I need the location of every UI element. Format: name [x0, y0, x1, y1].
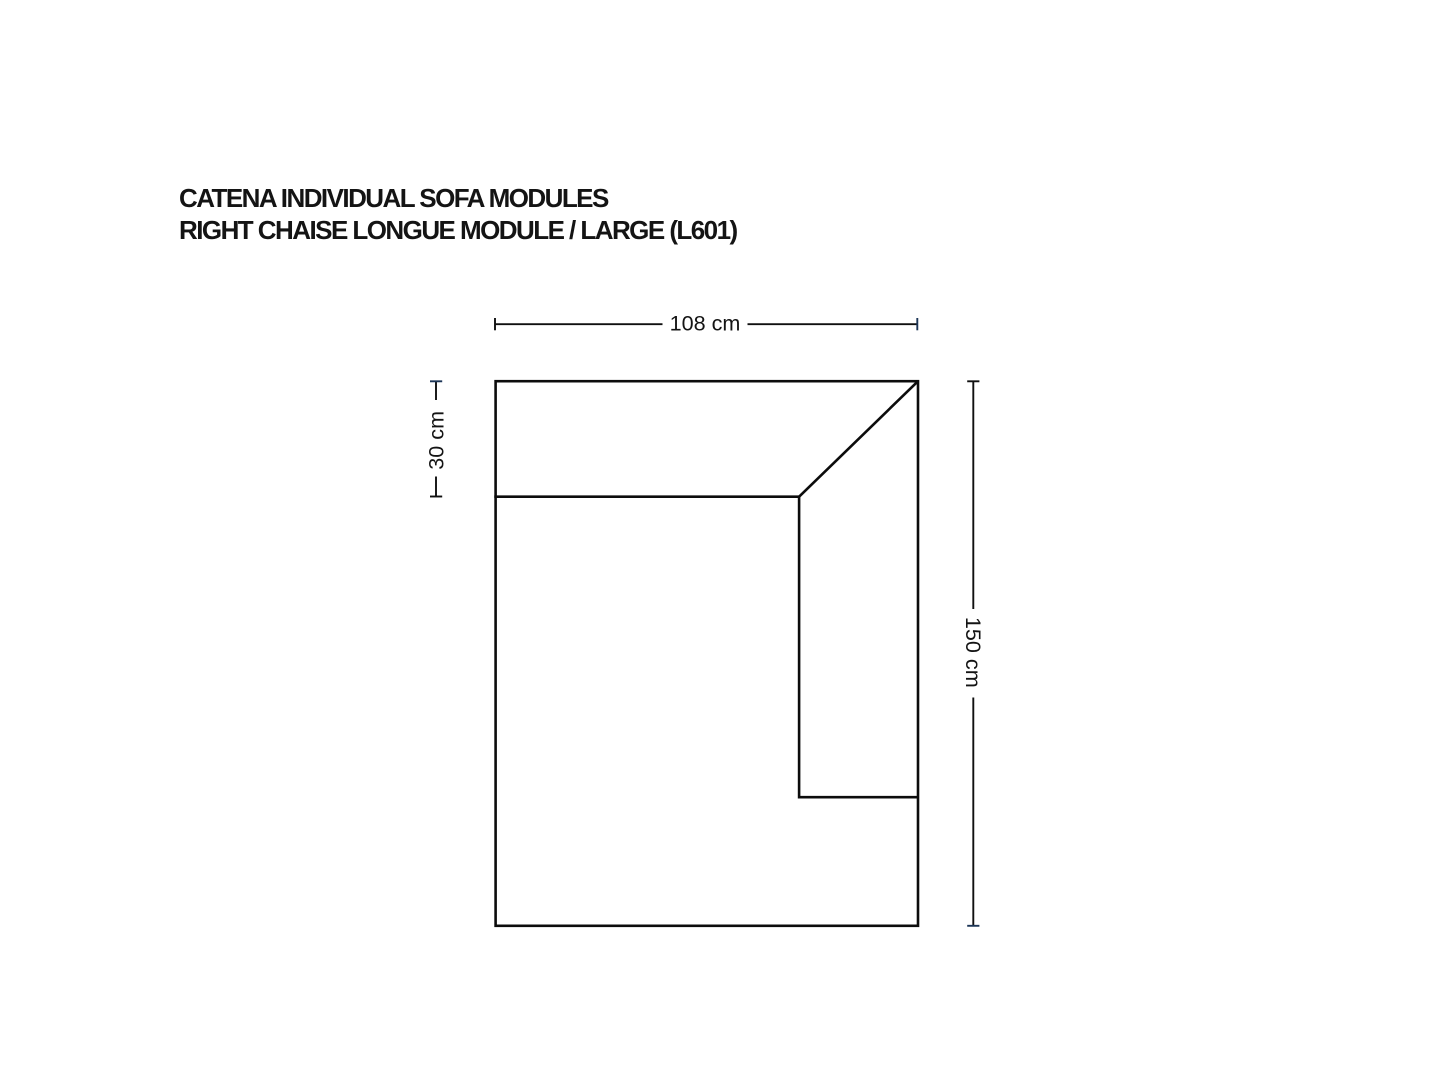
- svg-text:108 cm: 108 cm: [670, 311, 741, 336]
- svg-text:150 cm: 150 cm: [961, 617, 986, 688]
- svg-text:30 cm: 30 cm: [424, 411, 449, 470]
